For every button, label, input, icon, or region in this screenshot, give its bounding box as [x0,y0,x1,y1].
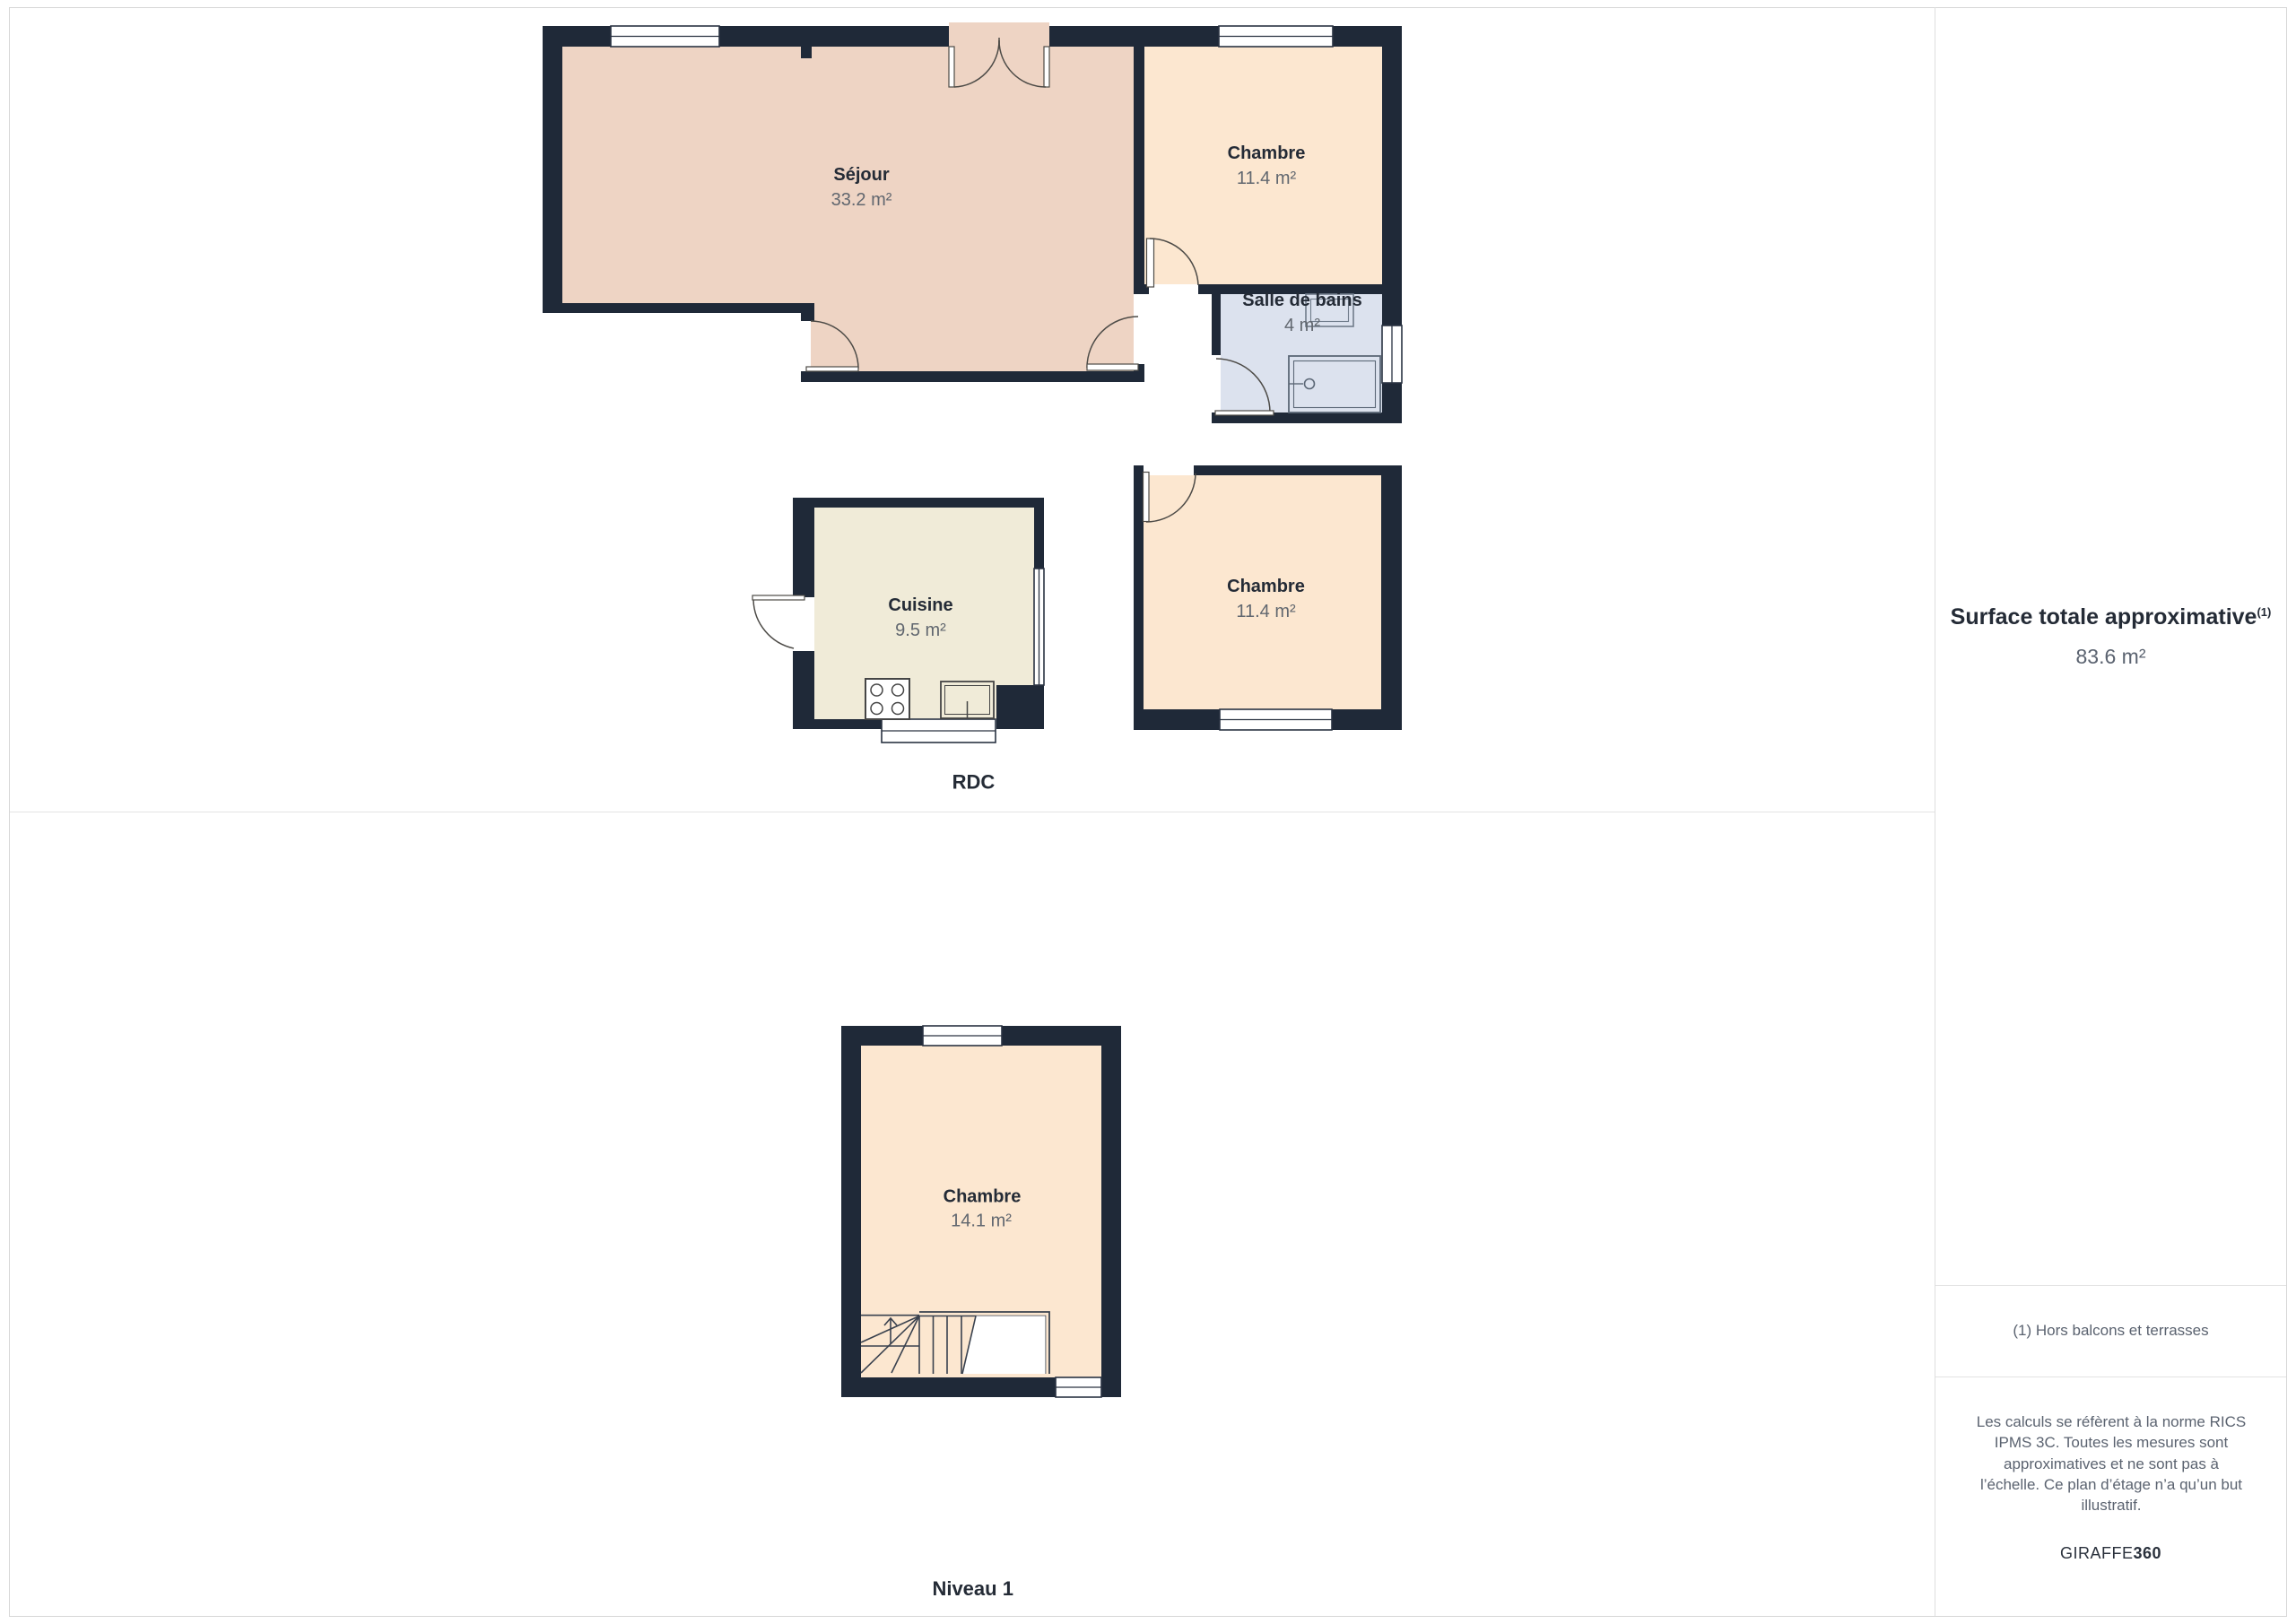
svg-text:Chambre: Chambre [1227,577,1305,596]
svg-text:14.1 m²: 14.1 m² [951,1211,1012,1231]
svg-text:4 m²: 4 m² [1284,316,1320,335]
svg-text:Chambre: Chambre [944,1187,1022,1207]
svg-text:11.4 m²: 11.4 m² [1237,169,1297,188]
svg-text:9.5 m²: 9.5 m² [895,621,946,640]
svg-text:Chambre: Chambre [1228,143,1306,163]
svg-text:Séjour: Séjour [833,165,889,185]
svg-text:Cuisine: Cuisine [888,595,952,615]
svg-text:33.2 m²: 33.2 m² [831,190,892,210]
svg-text:Salle de bains: Salle de bains [1242,291,1361,310]
svg-text:RDC: RDC [952,771,996,794]
svg-text:11.4 m²: 11.4 m² [1236,602,1296,621]
svg-text:Niveau 1: Niveau 1 [932,1577,1013,1600]
